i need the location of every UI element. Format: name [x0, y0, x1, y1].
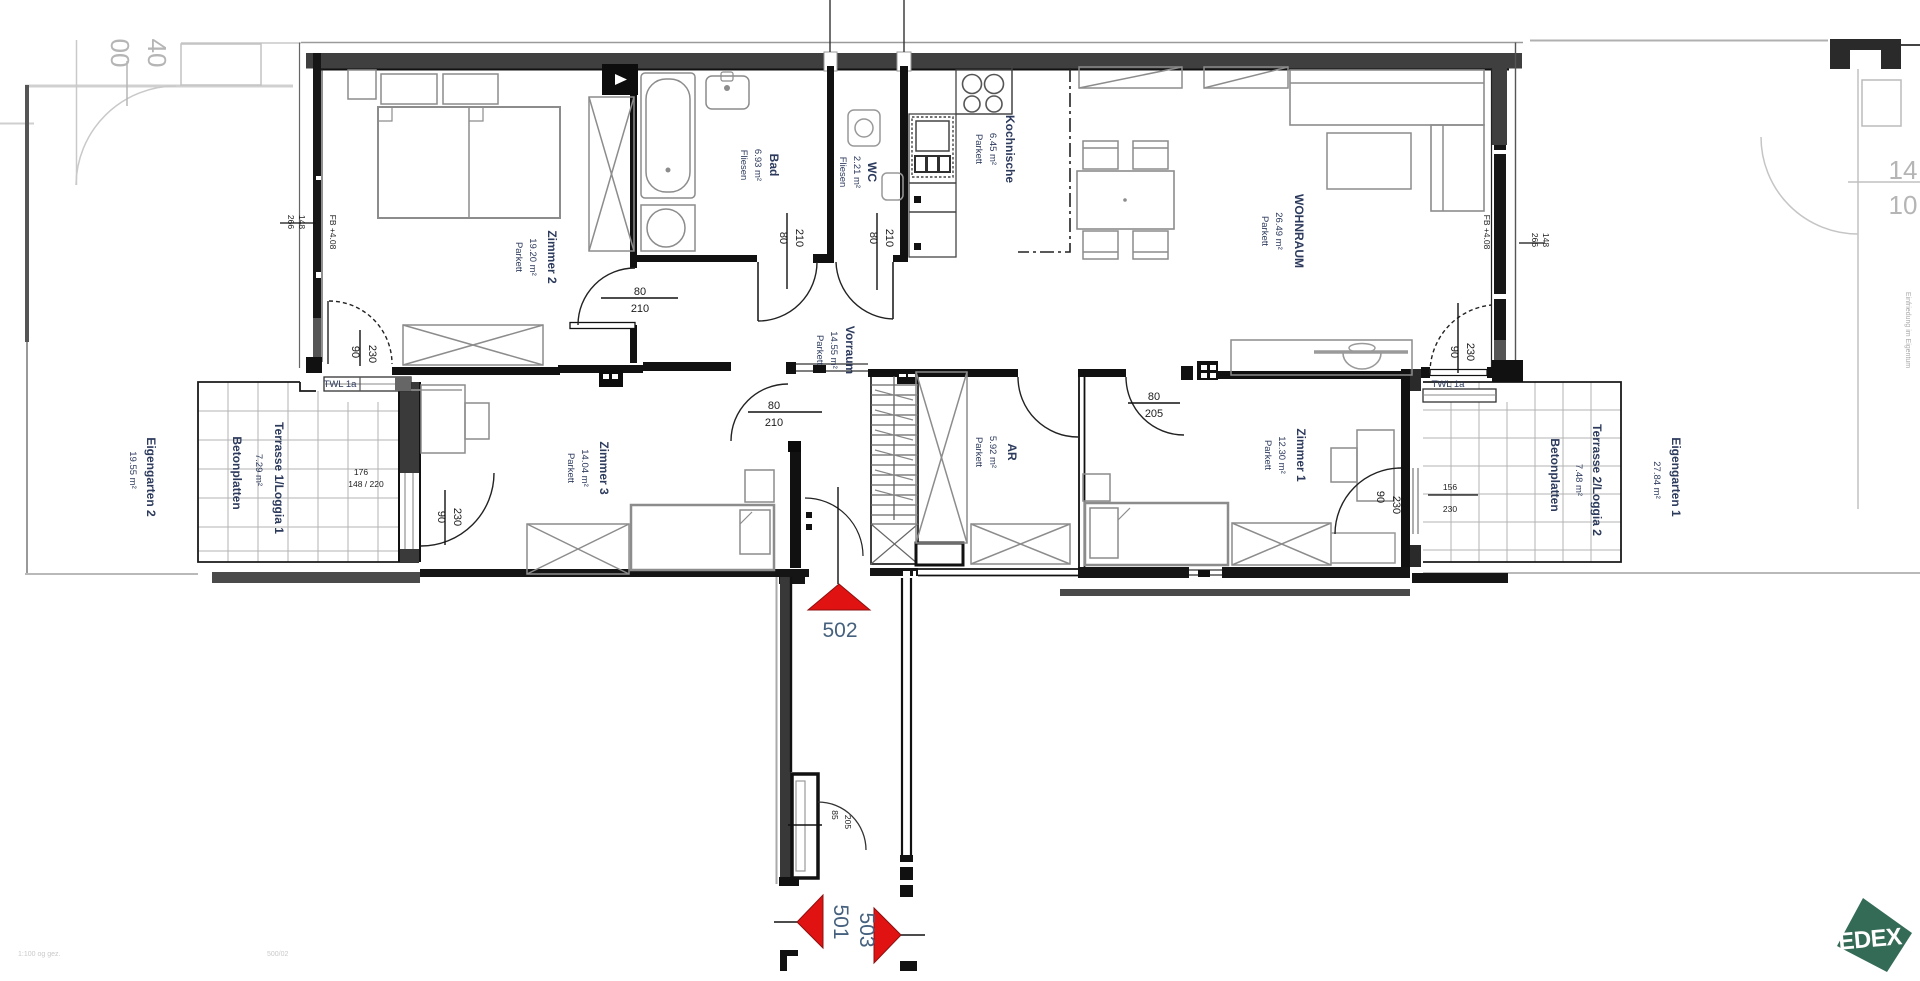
svg-text:85: 85 — [830, 810, 840, 820]
svg-text:Terrasse 2/Loggia 2: Terrasse 2/Loggia 2 — [1590, 424, 1604, 536]
svg-text:230: 230 — [451, 508, 463, 526]
svg-text:12.30 m²: 12.30 m² — [1276, 436, 1287, 474]
svg-text:Fliesen: Fliesen — [738, 150, 749, 181]
svg-text:503: 503 — [855, 912, 878, 947]
svg-text:Betonplatten: Betonplatten — [230, 436, 244, 509]
svg-text:Parkett: Parkett — [973, 134, 984, 164]
svg-text:80: 80 — [634, 286, 646, 298]
svg-text:14.04 m²: 14.04 m² — [579, 449, 590, 487]
svg-text:266: 266 — [286, 215, 296, 229]
svg-text:EDEX: EDEX — [1837, 923, 1903, 955]
svg-text:230: 230 — [1443, 504, 1457, 514]
svg-text:Parkett: Parkett — [973, 437, 984, 467]
svg-text:Fliesen: Fliesen — [837, 157, 848, 188]
svg-text:Parkett: Parkett — [814, 335, 825, 365]
svg-text:Eigengarten 2: Eigengarten 2 — [144, 437, 158, 517]
svg-text:90: 90 — [349, 346, 361, 358]
svg-text:14.55 m²: 14.55 m² — [828, 331, 839, 369]
svg-text:Vorraum: Vorraum — [843, 326, 857, 374]
svg-text:230: 230 — [1390, 496, 1402, 514]
svg-text:TWL 1a: TWL 1a — [1432, 379, 1466, 390]
svg-text:40: 40 — [142, 39, 172, 68]
svg-text:1:100 og gez.: 1:100 og gez. — [18, 951, 60, 958]
svg-text:7.48 m²: 7.48 m² — [1573, 464, 1584, 496]
svg-text:WOHNRAUM: WOHNRAUM — [1292, 194, 1306, 268]
svg-text:176: 176 — [354, 467, 368, 477]
svg-text:210: 210 — [631, 303, 649, 315]
svg-text:Parkett: Parkett — [1262, 440, 1273, 470]
svg-text:Zimmer 2: Zimmer 2 — [545, 230, 559, 284]
svg-text:90: 90 — [1374, 491, 1386, 503]
svg-text:Eigengarten 1: Eigengarten 1 — [1669, 437, 1683, 517]
svg-text:500/02: 500/02 — [267, 951, 289, 958]
svg-text:230: 230 — [1464, 343, 1476, 361]
svg-text:148 / 220: 148 / 220 — [348, 479, 384, 489]
svg-text:148: 148 — [297, 215, 307, 229]
svg-text:Zimmer 1: Zimmer 1 — [1294, 428, 1308, 482]
svg-text:TWL 1a: TWL 1a — [324, 379, 358, 390]
svg-text:266: 266 — [1530, 233, 1540, 247]
svg-text:Bad: Bad — [767, 154, 781, 177]
svg-text:156: 156 — [1443, 482, 1457, 492]
svg-text:80: 80 — [1148, 391, 1160, 403]
svg-text:WC: WC — [865, 162, 879, 182]
svg-text:210: 210 — [765, 417, 783, 429]
svg-text:501: 501 — [829, 904, 852, 939]
svg-text:5.92 m²: 5.92 m² — [987, 436, 998, 468]
svg-text:27.84 m²: 27.84 m² — [1651, 461, 1662, 499]
svg-text:80: 80 — [867, 232, 879, 244]
svg-text:Terrasse 1/Loggia 1: Terrasse 1/Loggia 1 — [272, 422, 286, 534]
svg-text:205: 205 — [1145, 408, 1163, 420]
svg-text:230: 230 — [366, 345, 378, 363]
svg-text:00: 00 — [105, 39, 135, 68]
svg-text:19.55 m²: 19.55 m² — [127, 451, 138, 489]
svg-text:AR: AR — [1005, 443, 1019, 461]
svg-text:Parkett: Parkett — [513, 242, 524, 272]
svg-text:Parkett: Parkett — [565, 453, 576, 483]
svg-text:80: 80 — [777, 232, 789, 244]
svg-text:Kochnische: Kochnische — [1003, 115, 1017, 183]
svg-text:Zimmer 3: Zimmer 3 — [597, 441, 611, 495]
svg-text:Parkett: Parkett — [1259, 216, 1270, 246]
svg-text:205: 205 — [843, 815, 853, 829]
svg-text:FB +4.08: FB +4.08 — [1482, 215, 1492, 250]
svg-text:19.20 m²: 19.20 m² — [527, 238, 538, 276]
svg-text:Betonplatten: Betonplatten — [1548, 438, 1562, 511]
svg-text:90: 90 — [435, 511, 447, 523]
svg-text:90: 90 — [1448, 346, 1460, 358]
svg-text:148: 148 — [1541, 233, 1551, 247]
svg-text:Einfriedung im Eigentum: Einfriedung im Eigentum — [1904, 292, 1911, 368]
svg-text:210: 210 — [793, 229, 805, 247]
svg-text:210: 210 — [883, 229, 895, 247]
svg-text:2.21 m²: 2.21 m² — [851, 156, 862, 188]
svg-text:26.49 m²: 26.49 m² — [1273, 212, 1284, 250]
svg-text:6.93 m²: 6.93 m² — [752, 149, 763, 181]
svg-text:80: 80 — [768, 400, 780, 412]
svg-text:502: 502 — [822, 619, 857, 642]
svg-text:FB +4.08: FB +4.08 — [328, 215, 338, 250]
svg-text:6.45 m²: 6.45 m² — [987, 133, 998, 165]
svg-text:7.29 m²: 7.29 m² — [253, 454, 264, 486]
svg-text:10: 10 — [1889, 190, 1918, 220]
svg-text:14: 14 — [1889, 155, 1918, 185]
